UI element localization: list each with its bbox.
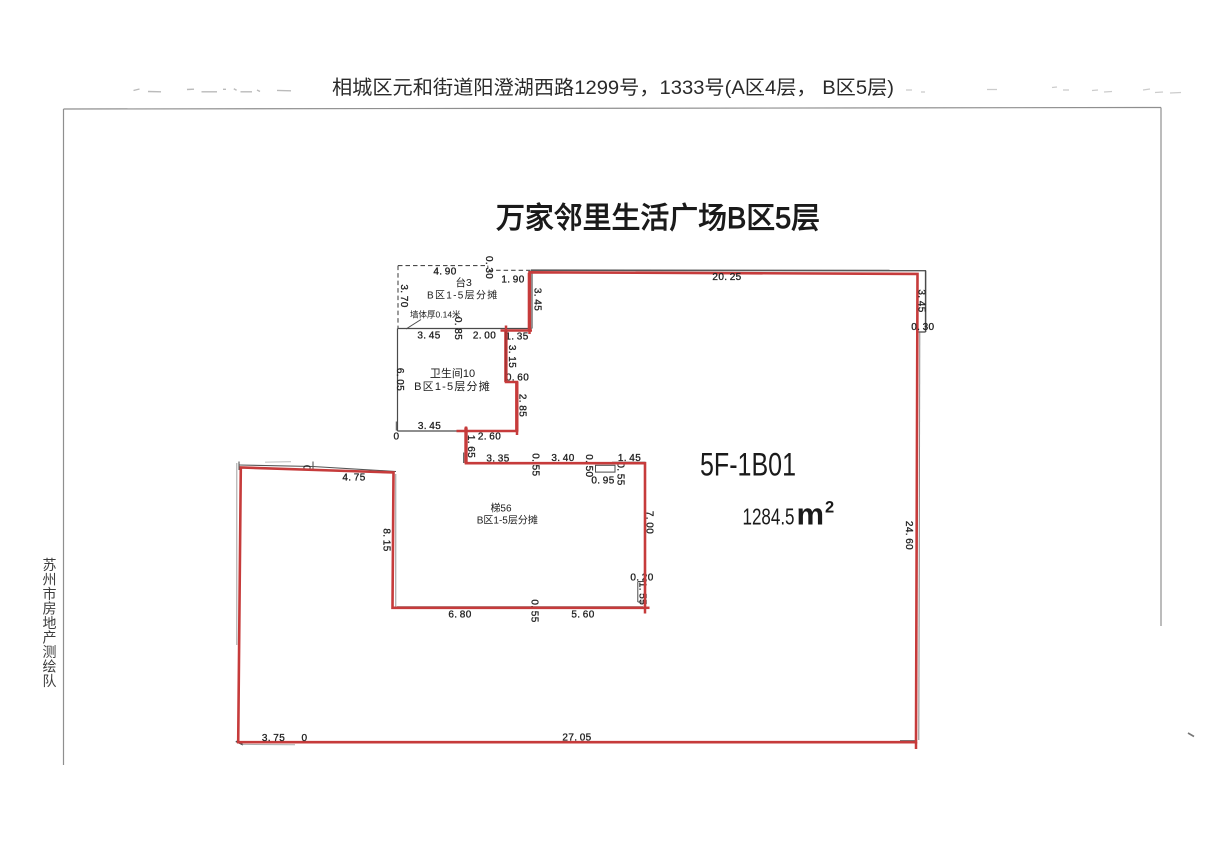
svg-text:队: 队 xyxy=(43,673,57,689)
svg-text:2: 2 xyxy=(825,499,834,517)
svg-text:27. 05: 27. 05 xyxy=(562,733,591,744)
svg-text:0: 0 xyxy=(302,733,308,744)
svg-text:1284.5: 1284.5 xyxy=(743,504,795,530)
svg-text:3. 70: 3. 70 xyxy=(398,284,409,307)
svg-text:0. 95: 0. 95 xyxy=(591,476,614,487)
svg-text:0: 0 xyxy=(394,432,400,443)
svg-text:3. 75: 3. 75 xyxy=(262,733,285,744)
svg-text:1. 90: 1. 90 xyxy=(501,275,524,286)
svg-text:B区1-5层分摊: B区1-5层分摊 xyxy=(477,513,538,526)
svg-text:2. 60: 2. 60 xyxy=(478,432,501,443)
svg-text:0. 55: 0. 55 xyxy=(529,599,540,622)
svg-text:0. 55: 0. 55 xyxy=(530,453,541,476)
svg-text:0. 85: 0. 85 xyxy=(452,317,463,340)
svg-text:6. 80: 6. 80 xyxy=(448,610,471,621)
svg-text:m: m xyxy=(797,497,825,532)
svg-text:24. 60: 24. 60 xyxy=(903,521,914,550)
svg-text:0. 50: 0. 50 xyxy=(583,454,594,477)
svg-text:卫生间10: 卫生间10 xyxy=(430,366,475,380)
svg-text:20. 25: 20. 25 xyxy=(712,272,741,283)
svg-text:2. 00: 2. 00 xyxy=(473,331,496,342)
svg-text:0. 55: 0. 55 xyxy=(615,462,626,485)
svg-text:8. 15: 8. 15 xyxy=(381,528,392,551)
svg-text:万家邻里生活广场B区5层: 万家邻里生活广场B区5层 xyxy=(496,202,820,235)
svg-text:4. 90: 4. 90 xyxy=(433,267,456,278)
svg-text:相城区元和街道阳澄湖西路1299号，1333号(A区4层，: 相城区元和街道阳澄湖西路1299号，1333号(A区4层， B区5层) xyxy=(332,77,894,99)
svg-text:6. 05: 6. 05 xyxy=(394,368,405,391)
svg-text:3. 45: 3. 45 xyxy=(418,421,441,432)
svg-text:0. 30: 0. 30 xyxy=(483,256,494,279)
svg-text:3. 45: 3. 45 xyxy=(915,289,926,312)
svg-text:3. 15: 3. 15 xyxy=(506,345,517,368)
svg-text:3. 45: 3. 45 xyxy=(532,288,543,311)
svg-text:3. 45: 3. 45 xyxy=(417,331,440,342)
svg-text:台3: 台3 xyxy=(456,276,472,289)
svg-text:B区1-5层分摊: B区1-5层分摊 xyxy=(414,379,491,393)
svg-text:1. 35: 1. 35 xyxy=(505,332,528,343)
svg-text:4. 75: 4. 75 xyxy=(342,473,365,484)
svg-text:梯56: 梯56 xyxy=(490,501,512,514)
svg-text:5F-1B01: 5F-1B01 xyxy=(700,447,796,483)
svg-text:0. 30: 0. 30 xyxy=(911,322,934,333)
svg-text:5. 60: 5. 60 xyxy=(571,610,594,621)
svg-text:B区1-5层分摊: B区1-5层分摊 xyxy=(427,289,499,302)
